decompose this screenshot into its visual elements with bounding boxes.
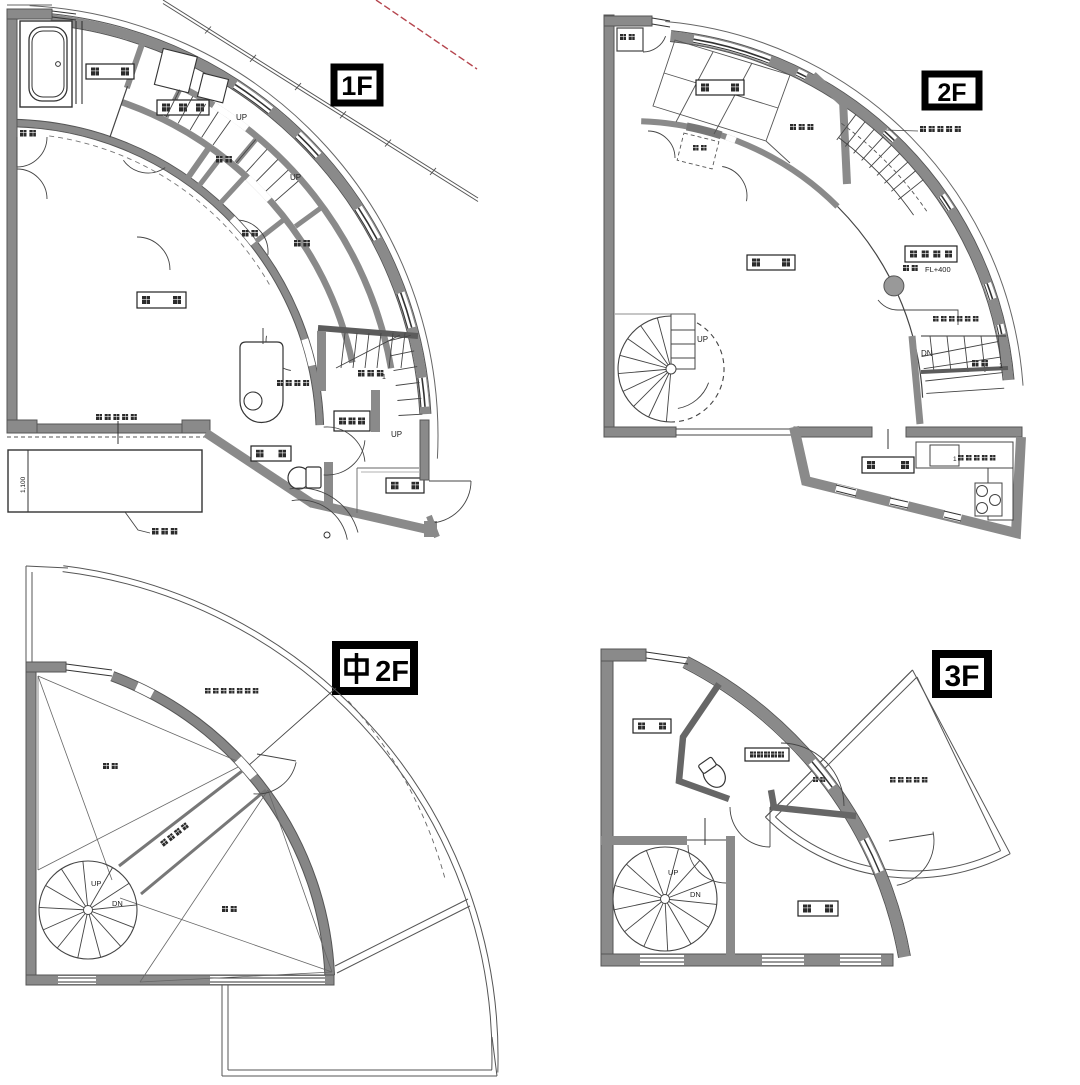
svg-text:1: 1 bbox=[999, 363, 1003, 370]
svg-text:1: 1 bbox=[382, 374, 386, 381]
svg-text:1,100: 1,100 bbox=[20, 476, 27, 493]
svg-text:UP: UP bbox=[697, 335, 708, 344]
svg-text:1: 1 bbox=[953, 456, 957, 463]
svg-text:UP: UP bbox=[91, 879, 101, 888]
svg-text:DN: DN bbox=[690, 890, 701, 899]
svg-text:UP: UP bbox=[668, 868, 678, 877]
svg-text:1F: 1F bbox=[341, 71, 373, 101]
svg-text:FL+400: FL+400 bbox=[925, 265, 951, 274]
svg-text:DN: DN bbox=[112, 899, 123, 908]
svg-text:2F: 2F bbox=[375, 656, 409, 688]
svg-text:UP: UP bbox=[391, 430, 402, 439]
svg-text:UP: UP bbox=[290, 173, 301, 182]
svg-text:3F: 3F bbox=[944, 660, 979, 693]
svg-text:UP: UP bbox=[236, 113, 247, 122]
svg-text:2F: 2F bbox=[937, 79, 966, 107]
